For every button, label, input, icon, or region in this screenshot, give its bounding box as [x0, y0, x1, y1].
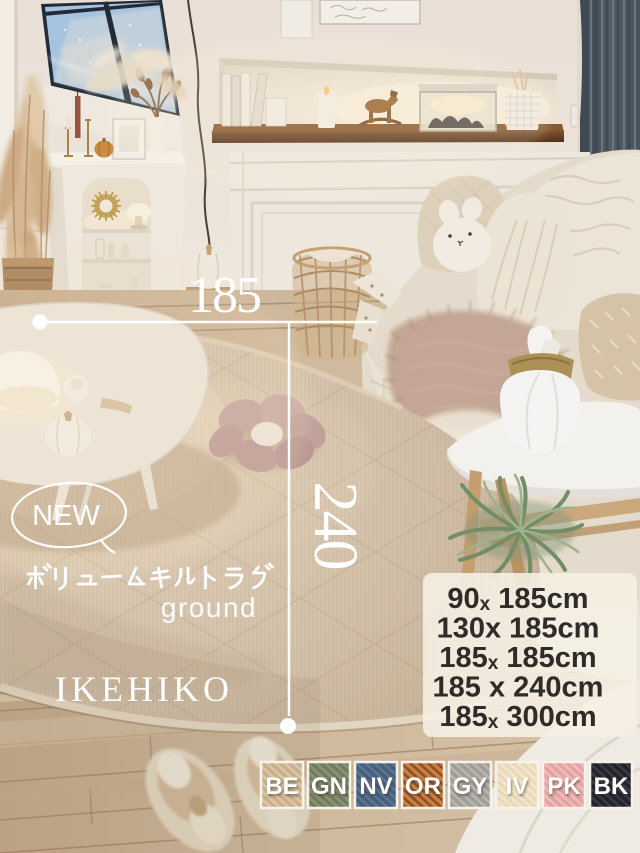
svg-text:BK: BK [594, 773, 629, 800]
svg-text:IKEHIKO: IKEHIKO [55, 669, 233, 709]
svg-text:PK: PK [547, 773, 581, 800]
svg-text:185: 185 [188, 267, 260, 324]
svg-text:IV: IV [506, 773, 529, 800]
svg-text:NV: NV [359, 773, 392, 800]
svg-text:90x 185cm: 90x 185cm [447, 583, 588, 615]
svg-text:GY: GY [453, 773, 488, 800]
svg-text:ground: ground [161, 592, 257, 623]
svg-text:130x 185cm: 130x 185cm [437, 613, 600, 645]
svg-text:240: 240 [301, 482, 369, 569]
svg-text:185 x 240cm: 185 x 240cm [433, 672, 604, 704]
svg-text:BE: BE [265, 773, 298, 800]
svg-text:NEW: NEW [32, 500, 100, 532]
svg-text:GN: GN [311, 773, 347, 800]
svg-text:OR: OR [405, 773, 441, 800]
svg-text:185x 185cm: 185x 185cm [439, 642, 596, 674]
svg-text:185x 300cm: 185x 300cm [439, 701, 596, 733]
